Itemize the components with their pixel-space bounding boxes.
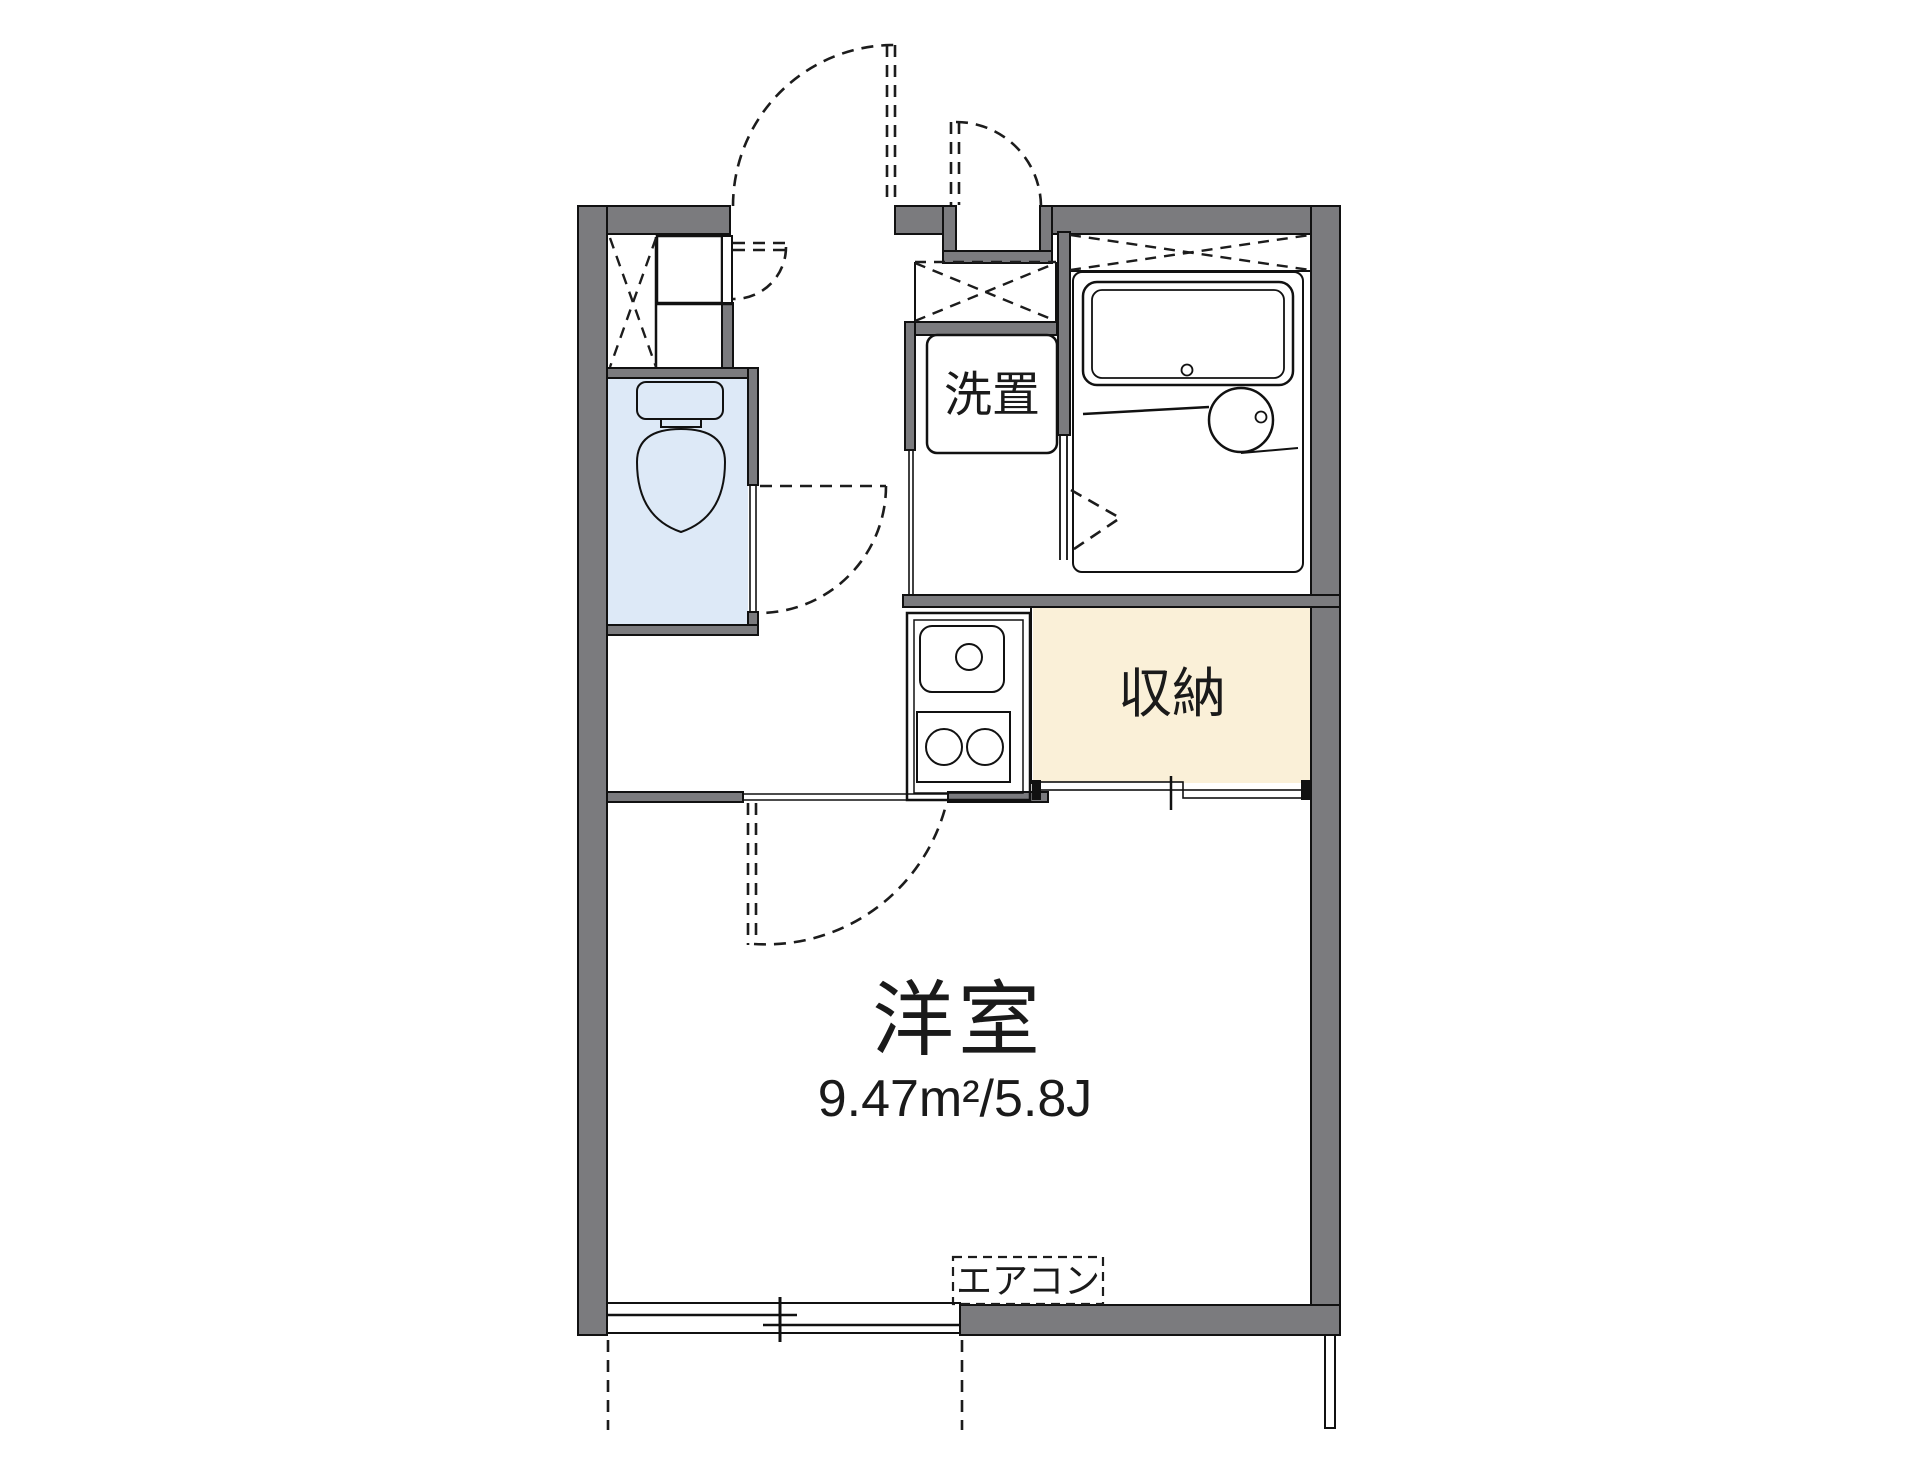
bathroom-shelf-cross [1070,235,1310,270]
entry-stub-wall [722,303,733,368]
window-frame [607,1303,960,1333]
meter-box-door-arc [956,122,1041,206]
floorplan-svg: 洗置 収納 [0,0,1920,1459]
outer-wall-top-mid [895,206,943,234]
toilet-floor [607,378,748,625]
aircon-label: エアコン [956,1260,1100,1301]
laundry-nook-wall [905,322,915,450]
toilet-wall-top [607,368,758,378]
main-room: 洋室 9.47m²/5.8J エアコン [818,975,1103,1304]
toilet-door-arc [759,486,886,613]
room-divider-wall-left [607,792,743,802]
meter-box-door [951,122,1041,206]
genkan-closet-door-arc [733,247,786,299]
storage-slide-panel-right [1183,790,1302,798]
bathtub-drain [1182,365,1193,376]
toilet-wall-bottom [607,625,758,635]
storage-slide-cap-right [1301,780,1310,800]
storage-label: 収納 [1118,664,1226,724]
outer-wall-left [578,206,607,1335]
laundry-shelf-wall [905,322,1057,335]
stove-frame [917,712,1010,782]
entry-closet-cross [610,238,656,367]
bath-counter-line [1083,407,1209,414]
kitchen-counter-inner [914,620,1023,793]
kitchen-unit [907,613,1030,800]
main-room-door-arc [754,805,946,944]
shoe-cabinet [657,236,722,303]
laundry-label: 洗置 [944,369,1040,422]
laundry-shelf-cross [915,262,1056,321]
aircon-box: エアコン [953,1257,1103,1304]
genkan-closet-door [733,243,786,299]
laundry-area: 洗置 [927,335,1057,453]
bath-folding-door [1071,490,1120,551]
kitchen-storage-wall [903,595,1340,607]
main-room-label: 洋室 [872,975,1044,1066]
doors [733,45,1041,945]
bathroom-wall-left [1058,232,1070,435]
outer-wall-top-right [1052,206,1340,234]
floorplan-canvas: 洗置 収納 [0,0,1920,1459]
bottom-window [607,1297,960,1342]
entry-frame [722,236,732,303]
entrance-door-arc [733,45,894,206]
exterior-marks [608,1335,1335,1430]
kitchen-counter [907,613,1030,800]
outer-wall-right [1311,206,1340,1335]
stove-burner-right [967,729,1003,765]
main-room-area: 9.47m²/5.8J [818,1070,1093,1128]
storage-slide-cap-left [1032,780,1041,800]
sink-drain [956,644,982,670]
bath-basin-faucet [1256,412,1267,423]
outer-wall-bottom [960,1305,1340,1335]
kitchen-sink [920,626,1004,692]
stove-burner-left [926,729,962,765]
main-room-door [748,803,946,945]
bathroom-fixtures [1071,282,1298,551]
toilet-wall-right-upper [748,368,758,485]
toilet-door [759,486,886,613]
entrance-door [733,45,895,206]
drain-pipe [1325,1335,1335,1428]
storage-slide-panel-left [1040,782,1183,790]
meter-box-niche [943,206,1052,263]
